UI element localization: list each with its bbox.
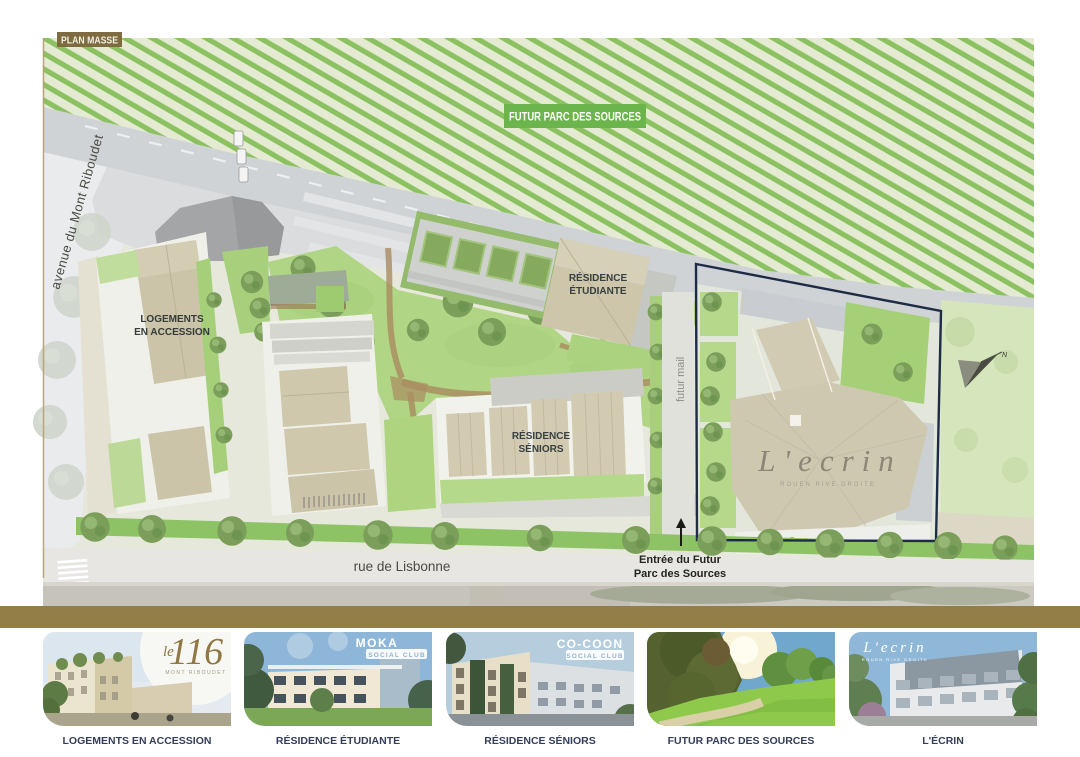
- svg-text:L'ÉCRIN: L'ÉCRIN: [922, 734, 964, 747]
- svg-text:PLAN MASSE: PLAN MASSE: [61, 36, 118, 47]
- svg-text:L'ecrin: L'ecrin: [862, 640, 926, 656]
- svg-text:RÉSIDENCE ÉTUDIANTE: RÉSIDENCE ÉTUDIANTE: [276, 734, 400, 747]
- svg-text:Parc des Sources: Parc des Sources: [634, 568, 726, 580]
- svg-text:SOCIAL CLUB: SOCIAL CLUB: [368, 652, 426, 659]
- svg-text:LOGEMENTS: LOGEMENTS: [140, 314, 204, 325]
- svg-text:RÉSIDENCE: RÉSIDENCE: [569, 271, 628, 284]
- svg-text:RÉSIDENCE: RÉSIDENCE: [512, 429, 571, 442]
- svg-text:SÉNIORS: SÉNIORS: [518, 442, 563, 455]
- svg-text:FUTUR PARC DES SOURCES: FUTUR PARC DES SOURCES: [668, 735, 815, 747]
- svg-text:SOCIAL CLUB: SOCIAL CLUB: [566, 653, 624, 660]
- svg-text:RÉSIDENCE SÉNIORS: RÉSIDENCE SÉNIORS: [484, 734, 595, 747]
- svg-text:LOGEMENTS EN ACCESSION: LOGEMENTS EN ACCESSION: [63, 735, 212, 747]
- svg-text:Entrée du Futur: Entrée du Futur: [639, 554, 722, 566]
- svg-text:EN ACCESSION: EN ACCESSION: [134, 327, 210, 338]
- svg-text:CO-COON: CO-COON: [557, 637, 623, 651]
- svg-text:MOKA: MOKA: [356, 636, 399, 650]
- svg-text:MONT RIBOUDET: MONT RIBOUDET: [165, 670, 226, 676]
- svg-text:futur mail: futur mail: [675, 357, 687, 402]
- svg-text:rue de Lisbonne: rue de Lisbonne: [354, 559, 451, 574]
- svg-text:116: 116: [169, 631, 223, 673]
- svg-text:FUTUR PARC DES SOURCES: FUTUR PARC DES SOURCES: [509, 110, 641, 124]
- svg-text:ÉTUDIANTE: ÉTUDIANTE: [569, 284, 627, 297]
- svg-text:ROUEN RIVE DROITE: ROUEN RIVE DROITE: [862, 657, 929, 662]
- svg-text:L'ecrin: L'ecrin: [757, 443, 902, 478]
- svg-text:ROUEN RIVE DROITE: ROUEN RIVE DROITE: [780, 482, 876, 488]
